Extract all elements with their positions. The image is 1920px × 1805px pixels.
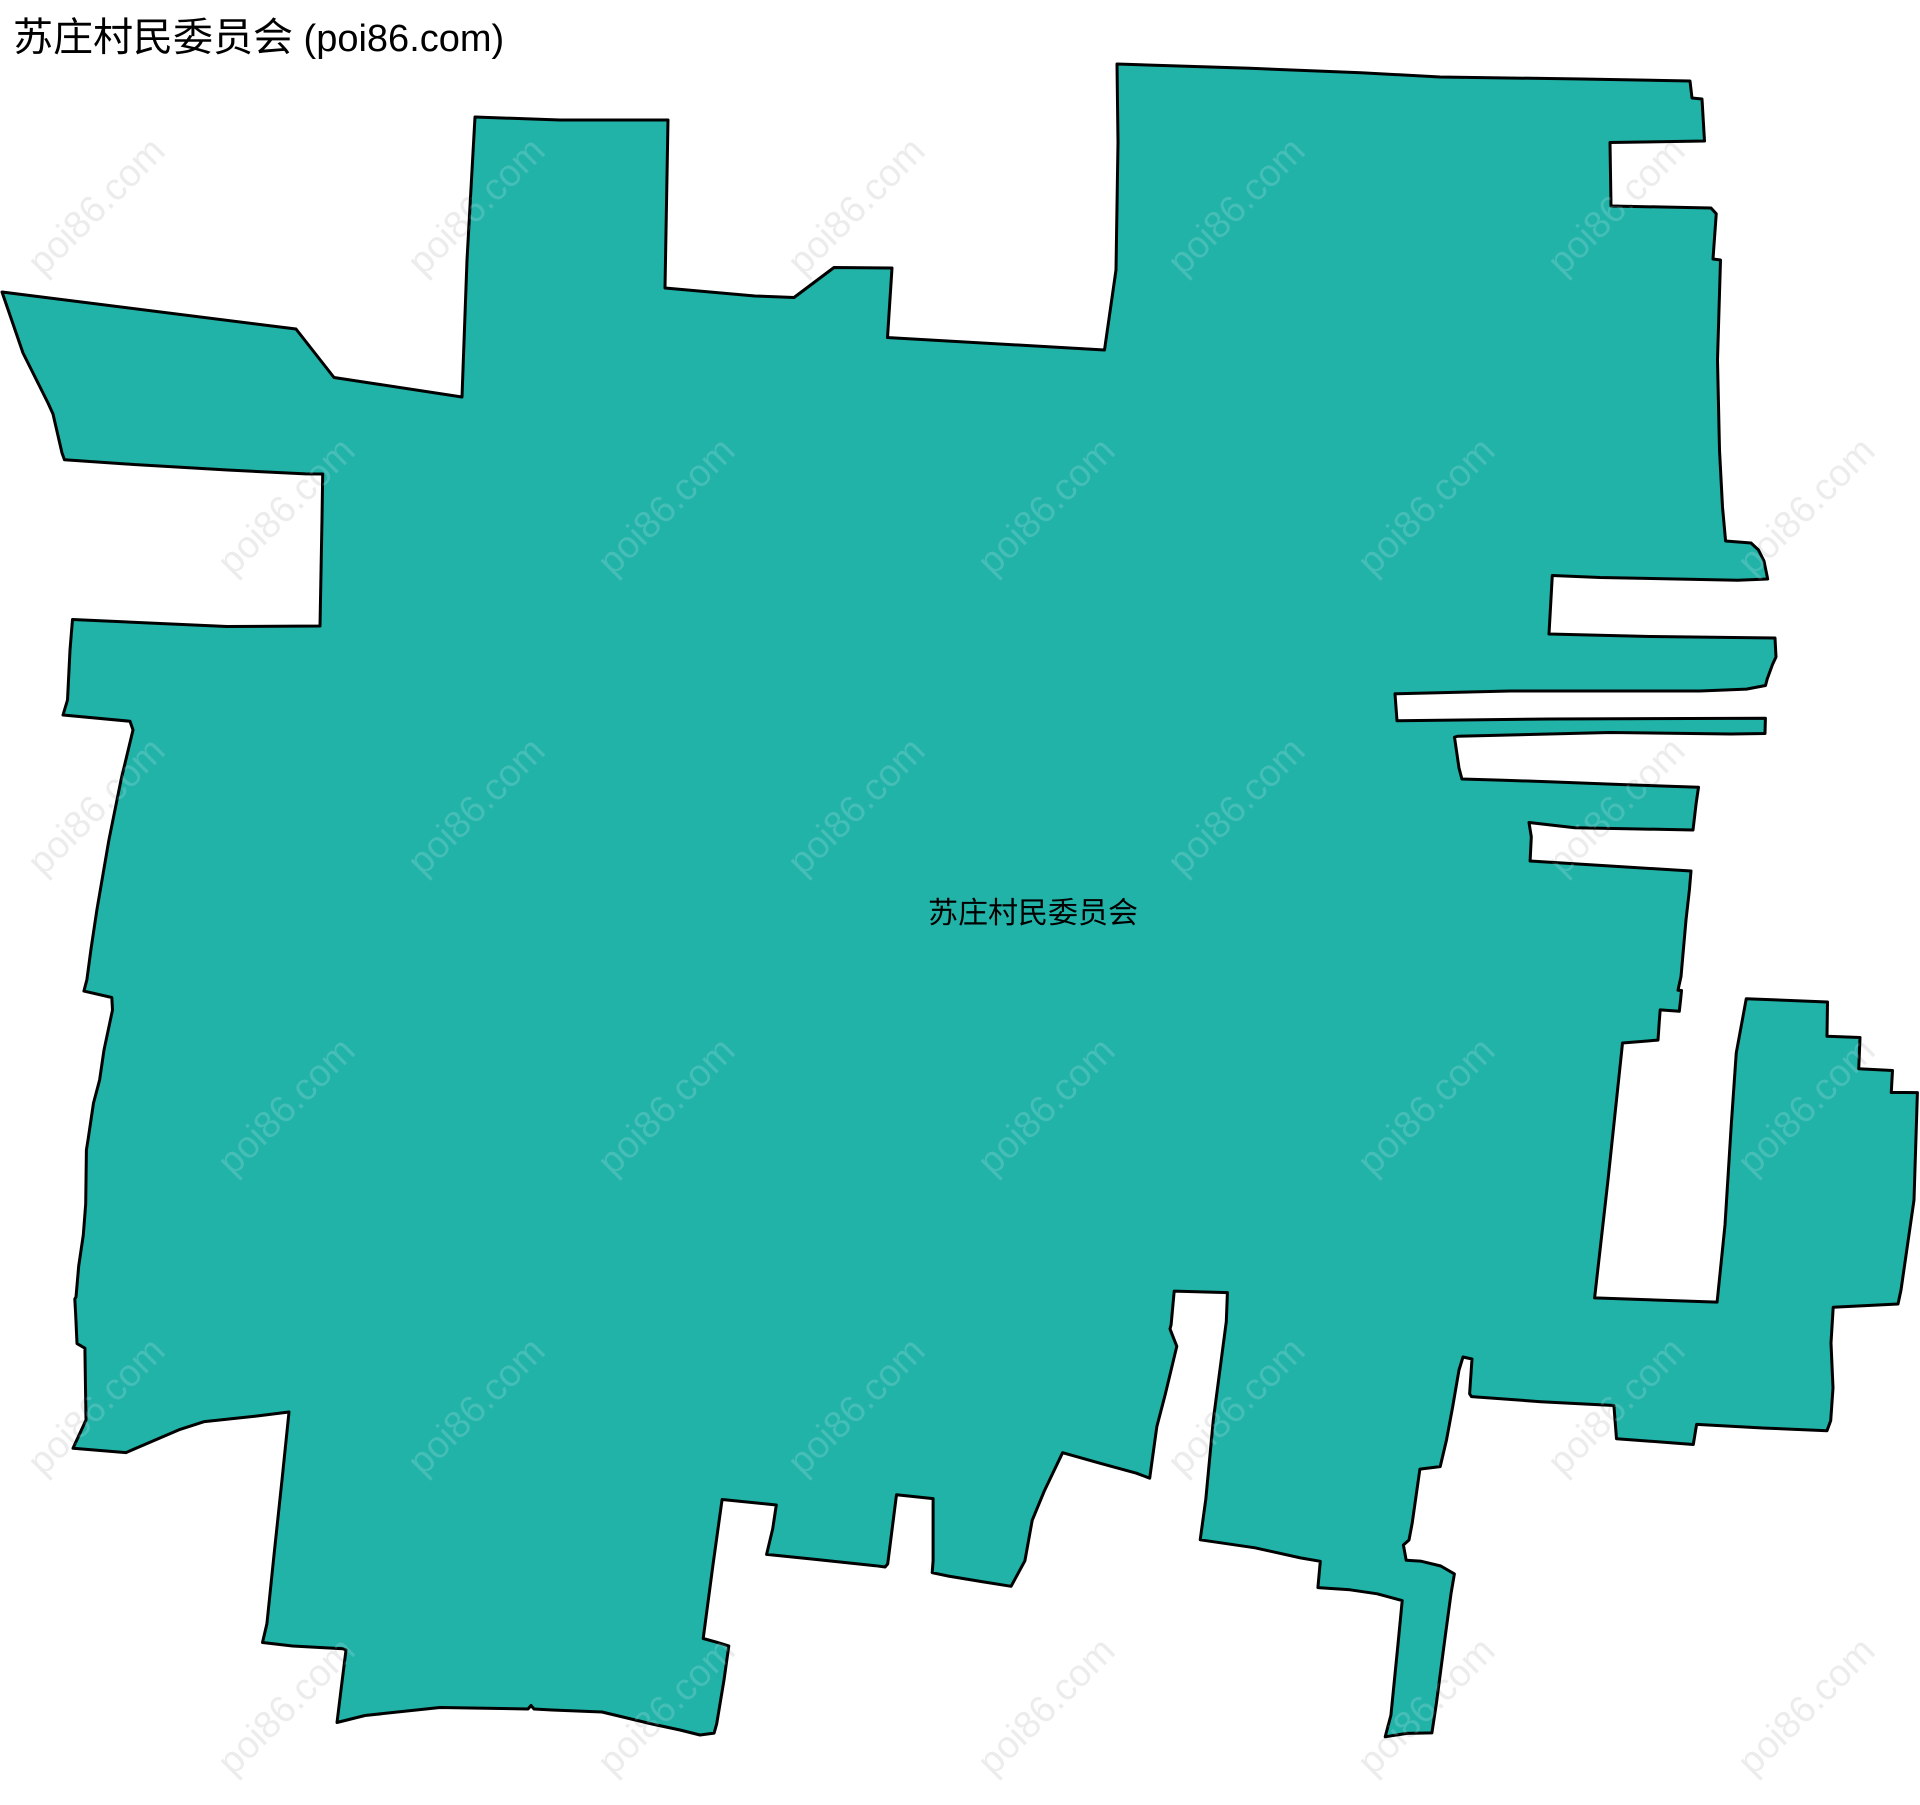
svg-text:(poi86.com): (poi86.com) <box>293 18 504 60</box>
